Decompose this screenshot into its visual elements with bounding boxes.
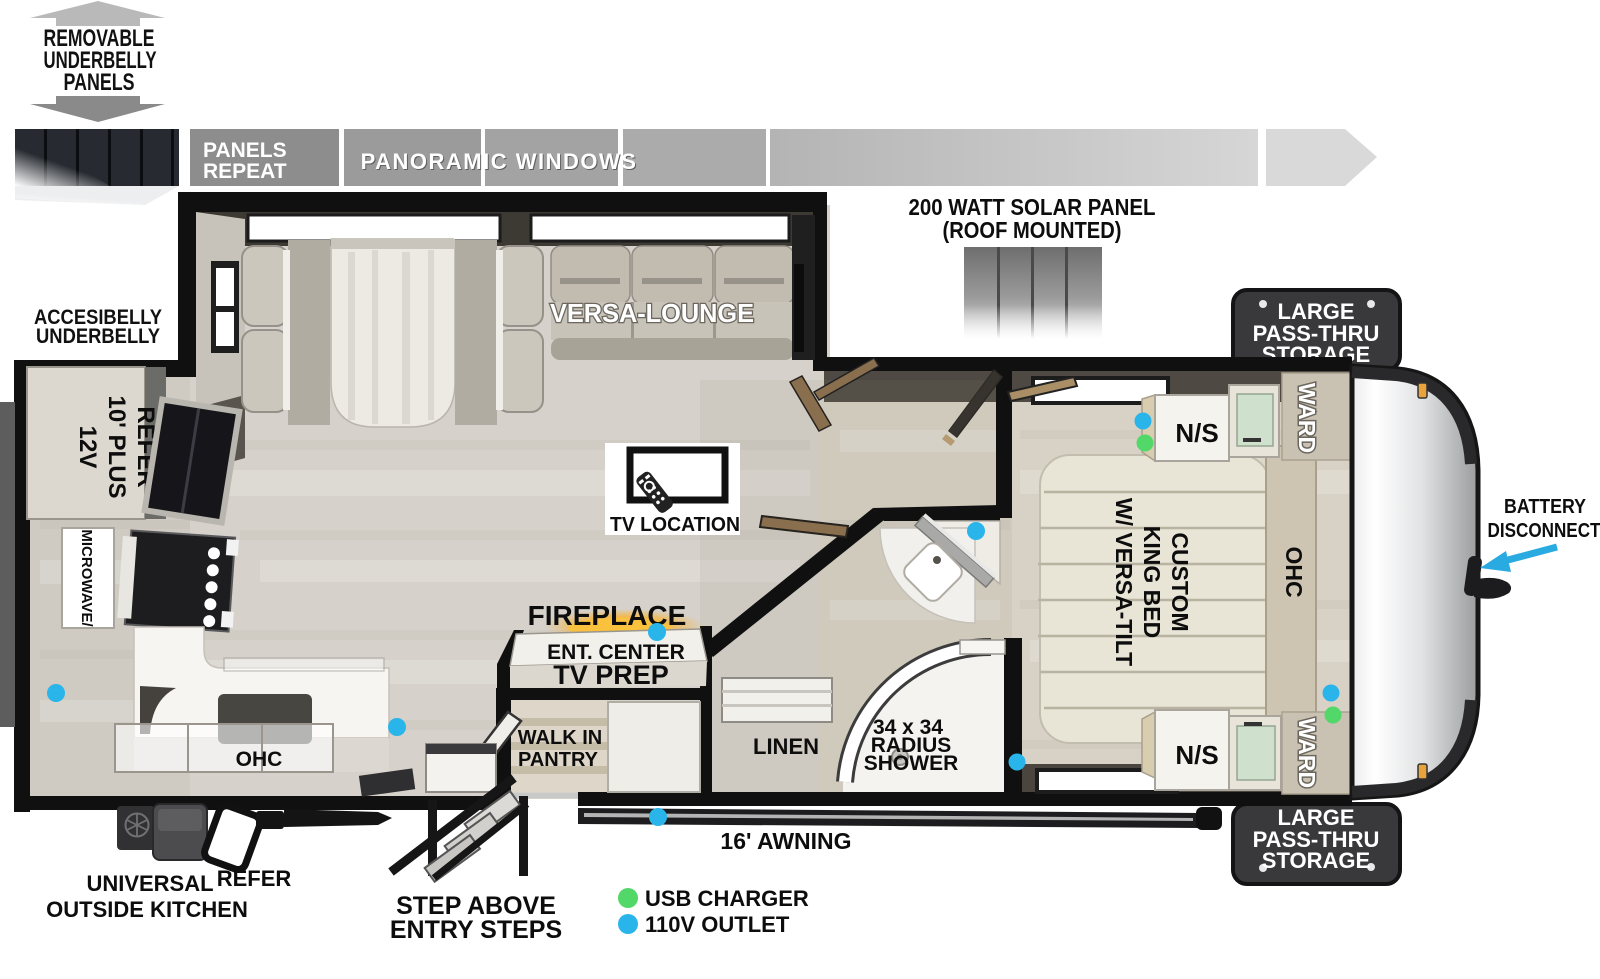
- svg-text:PANORAMIC WINDOWS: PANORAMIC WINDOWS: [361, 149, 638, 174]
- svg-text:16' AWNING: 16' AWNING: [720, 828, 851, 854]
- svg-text:N/S: N/S: [1175, 740, 1218, 770]
- svg-text:N/S: N/S: [1175, 418, 1218, 448]
- svg-text:PANELS: PANELS: [203, 139, 287, 162]
- svg-text:TV PREP: TV PREP: [553, 660, 669, 690]
- svg-text:110V OUTLET: 110V OUTLET: [645, 912, 790, 937]
- svg-text:VERSA-LOUNGE: VERSA-LOUNGE: [550, 298, 754, 328]
- svg-text:DISCONNECT: DISCONNECT: [1488, 520, 1600, 542]
- svg-text:SHOWER: SHOWER: [864, 752, 959, 775]
- svg-text:BATTERY: BATTERY: [1504, 496, 1587, 518]
- svg-text:UNIVERSAL: UNIVERSAL: [86, 871, 213, 896]
- svg-text:USB CHARGER: USB CHARGER: [645, 886, 809, 911]
- svg-text:UNDERBELLY: UNDERBELLY: [36, 325, 160, 348]
- svg-text:REFER: REFER: [217, 866, 292, 891]
- svg-text:ENTRY STEPS: ENTRY STEPS: [390, 916, 562, 944]
- svg-text:MICROWAVE/: MICROWAVE/: [78, 529, 95, 627]
- svg-text:(ROOF MOUNTED): (ROOF MOUNTED): [943, 217, 1122, 243]
- svg-text:STORAGE: STORAGE: [1262, 848, 1370, 873]
- svg-text:OHC: OHC: [1281, 546, 1307, 597]
- svg-text:TV LOCATION: TV LOCATION: [610, 514, 740, 536]
- svg-text:PANTRY: PANTRY: [518, 749, 599, 771]
- svg-text:WARD: WARD: [1294, 383, 1320, 453]
- svg-text:PANELS: PANELS: [64, 69, 135, 96]
- svg-text:LINEN: LINEN: [753, 734, 819, 759]
- svg-text:REPEAT: REPEAT: [203, 160, 287, 183]
- svg-text:OUTSIDE KITCHEN: OUTSIDE KITCHEN: [46, 897, 248, 922]
- svg-text:OHC: OHC: [236, 748, 283, 771]
- svg-text:WALK IN: WALK IN: [518, 727, 602, 749]
- svg-text:WARD: WARD: [1294, 718, 1320, 788]
